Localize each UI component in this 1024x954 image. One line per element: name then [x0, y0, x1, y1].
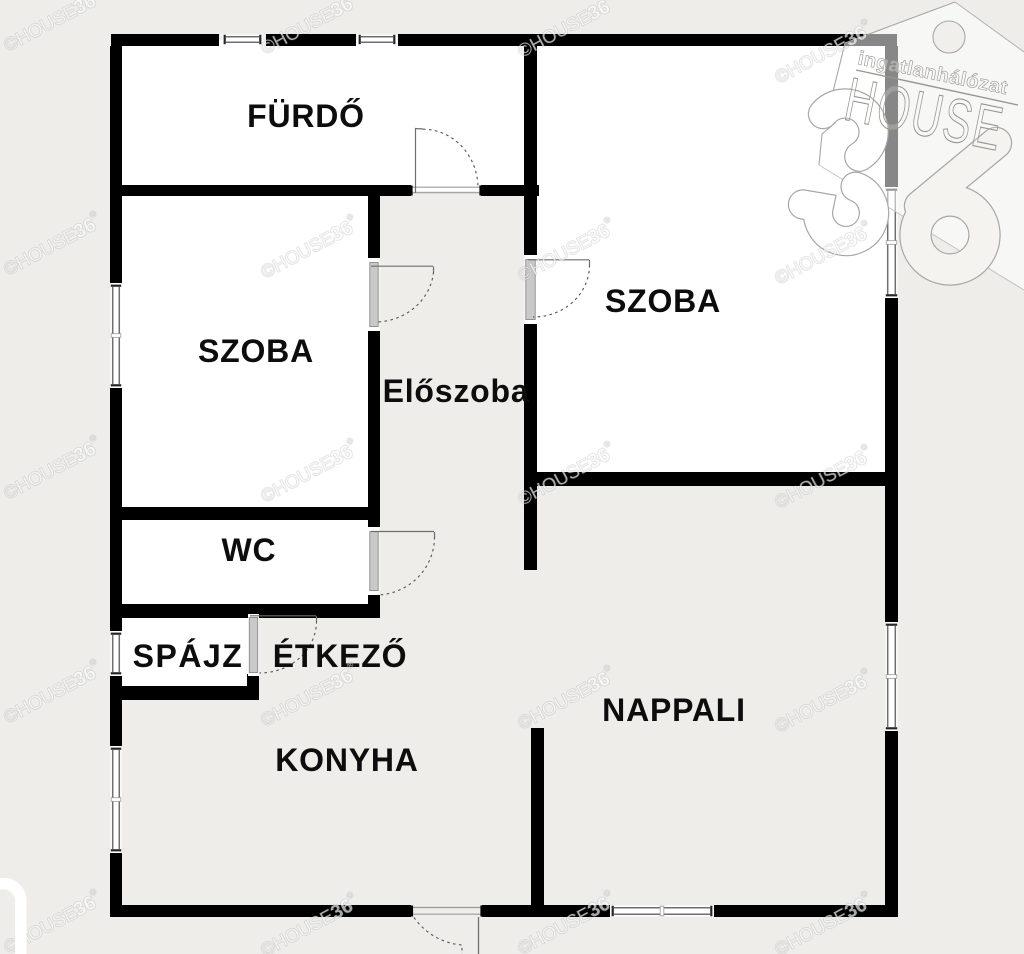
svg-text:FÜRDŐ: FÜRDŐ [247, 98, 365, 134]
svg-text:SZOBA: SZOBA [198, 333, 314, 369]
svg-text:SPÁJZ: SPÁJZ [133, 638, 244, 674]
svg-text:Előszoba: Előszoba [383, 373, 530, 409]
svg-text:SZOBA: SZOBA [605, 283, 721, 319]
svg-text:WC: WC [222, 532, 277, 568]
svg-text:NAPPALI: NAPPALI [602, 692, 746, 728]
svg-text:KONYHA: KONYHA [275, 742, 418, 778]
